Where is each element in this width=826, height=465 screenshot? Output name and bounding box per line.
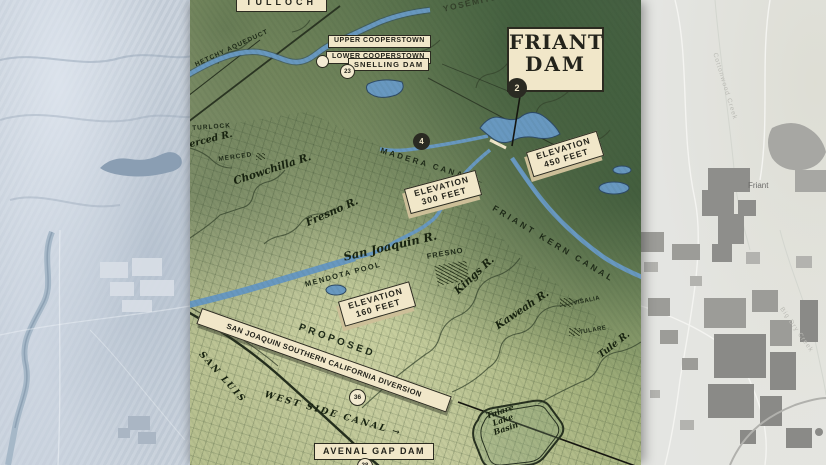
modern-town-dot	[815, 428, 823, 436]
satellite-basemap-left[interactable]	[0, 0, 196, 465]
visalia-city-mark	[560, 298, 573, 307]
historical-map-overlay[interactable]: TULLOCH UPPER COOPERSTOWN LOWER COOPERST…	[190, 0, 641, 465]
modern-urban-patches	[620, 123, 826, 448]
marker-diversion-unit: 36	[349, 389, 366, 406]
marker-madera-canal-unit: 4	[413, 133, 430, 150]
label-tulloch: TULLOCH	[236, 0, 327, 12]
map-viewer: Friant Cottonwood Creek Big Dry Creek	[0, 0, 826, 465]
marker-snelling-dam-unit: 23	[340, 64, 355, 79]
friant-dam-line1: FRIANT	[509, 31, 602, 53]
label-upper-cooperstown: UPPER COOPERSTOWN	[328, 35, 431, 48]
aerial-terrain	[0, 55, 196, 465]
modern-basemap-right[interactable]: Friant Cottonwood Creek Big Dry Creek	[620, 0, 826, 465]
cooperstown-town-dot	[316, 55, 329, 68]
label-snelling-dam: SNELLING DAM	[348, 58, 429, 71]
friant-dam-line2: DAM	[509, 53, 602, 75]
merced-city-mark	[256, 153, 265, 160]
aerial-artwork	[0, 0, 196, 465]
label-avenal-gap-dam: AVENAL GAP DAM	[314, 443, 434, 460]
marker-friant-dam-unit: 2	[507, 78, 527, 98]
modern-label-friant: Friant	[748, 181, 768, 190]
